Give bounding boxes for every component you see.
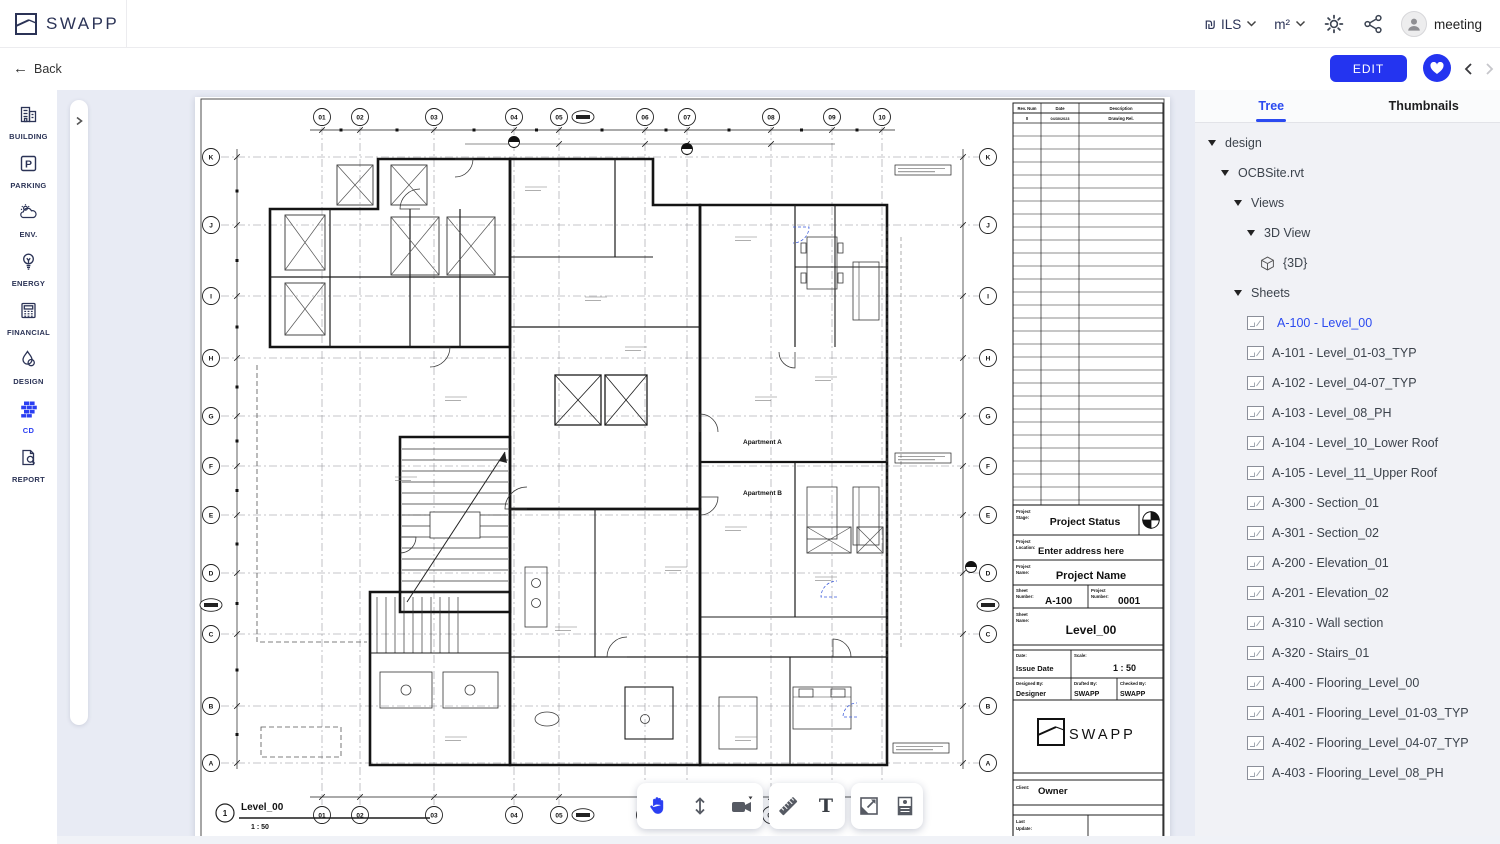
environment-icon	[18, 202, 40, 228]
sheet-icon	[1247, 646, 1264, 660]
svg-text:B: B	[986, 704, 991, 711]
tree-item-sheet[interactable]: A-104 - Level_10_Lower Roof	[1195, 428, 1500, 458]
tree-item-sheet[interactable]: A-401 - Flooring_Level_01-03_TYP	[1195, 698, 1500, 728]
swapp-logo-icon	[14, 12, 38, 36]
user-menu[interactable]: meeting	[1401, 11, 1482, 37]
sheet-info-tool[interactable]	[888, 789, 922, 823]
svg-text:SWAPP: SWAPP	[1120, 691, 1146, 698]
sheet-icon	[1247, 556, 1264, 570]
svg-text:05: 05	[555, 115, 563, 122]
svg-text:E: E	[986, 513, 991, 520]
back-button[interactable]: ← Back	[13, 60, 62, 77]
edit-button[interactable]: EDIT	[1330, 55, 1407, 82]
share-button[interactable]	[1362, 13, 1384, 35]
tree-item-label: A-102 - Level_04-07_TYP	[1272, 376, 1417, 390]
sheet-icon	[1247, 496, 1264, 510]
tree-item-label: A-201 - Elevation_02	[1272, 586, 1389, 600]
svg-text:Last: Last	[1016, 819, 1025, 824]
text-icon: T	[814, 794, 838, 818]
svg-text:G: G	[985, 414, 990, 421]
svg-text:10: 10	[878, 115, 886, 122]
svg-text:0001: 0001	[1118, 596, 1141, 607]
tree-item-label: A-310 - Wall section	[1272, 616, 1383, 630]
svg-text:Drawing Rel.: Drawing Rel.	[1108, 116, 1133, 121]
svg-text:G: G	[208, 414, 213, 421]
tree-item-sheet[interactable]: A-403 - Flooring_Level_08_PH	[1195, 758, 1500, 788]
panel-tabs: Tree Thumbnails	[1195, 90, 1500, 123]
share-icon	[1363, 14, 1383, 34]
svg-text:Sheet: Sheet	[1016, 588, 1028, 593]
svg-text:09: 09	[828, 115, 836, 122]
sheet-icon	[1247, 736, 1264, 750]
drawing-sheet[interactable]: Rev. NumDateDescription004/30/2023Drawin…	[195, 97, 1170, 840]
svg-text:C: C	[986, 632, 991, 639]
svg-text:A: A	[209, 761, 214, 768]
svg-text:T: T	[819, 795, 833, 817]
back-arrow-icon: ←	[13, 60, 28, 77]
height-measure-tool[interactable]	[683, 789, 717, 823]
svg-text:Update:: Update:	[1016, 826, 1033, 831]
rail-item-label: DESIGN	[13, 377, 44, 386]
svg-text:F: F	[209, 464, 213, 471]
currency-select[interactable]: ₪ ILS	[1204, 17, 1257, 32]
svg-text:Name:: Name:	[1016, 618, 1030, 623]
tree-item-sheet[interactable]: A-102 - Level_04-07_TYP	[1195, 368, 1500, 398]
rail-item-label: PARKING	[10, 181, 46, 190]
avatar	[1401, 11, 1427, 37]
tree-item-label: A-101 - Level_01-03_TYP	[1272, 346, 1417, 360]
currency-label: ILS	[1221, 17, 1241, 32]
sheet-icon	[1247, 526, 1264, 540]
floor-plan-svg: Rev. NumDateDescription004/30/2023Drawin…	[195, 97, 1170, 840]
prev-sheet-button[interactable]	[1460, 60, 1478, 78]
svg-text:D: D	[986, 571, 991, 578]
tree-item-label: Sheets	[1251, 286, 1290, 300]
arrows-up-down-icon	[688, 794, 712, 818]
svg-text:Project: Project	[1016, 509, 1031, 514]
svg-text:1: 1	[223, 809, 228, 818]
svg-text:Owner: Owner	[1038, 786, 1068, 797]
sub-header: ← Back EDIT	[0, 48, 1500, 90]
building-icon	[18, 104, 39, 130]
svg-text:H: H	[986, 356, 991, 363]
svg-text:Scale:: Scale:	[1074, 653, 1087, 658]
svg-text:Designed By:: Designed By:	[1016, 681, 1044, 686]
tree-item-sheet[interactable]: A-201 - Elevation_02	[1195, 578, 1500, 608]
collapsed-side-panel[interactable]	[70, 100, 88, 725]
tree-item[interactable]: Views	[1195, 188, 1500, 218]
rail-item-label: FINANCIAL	[7, 328, 50, 337]
svg-text:A-100: A-100	[1045, 596, 1073, 607]
gear-icon	[1324, 14, 1344, 34]
sheet-icon	[1247, 376, 1264, 390]
rail-item-parking[interactable]: P PARKING	[0, 147, 57, 196]
svg-text:J: J	[209, 223, 213, 230]
right-panel: Tree Thumbnails designOCBSite.rvtViews3D…	[1195, 90, 1500, 844]
svg-text:Level_00: Level_00	[1066, 623, 1117, 637]
svg-text:K: K	[209, 155, 214, 162]
tree-collapse-caret[interactable]	[1247, 230, 1255, 236]
next-sheet-button[interactable]	[1480, 60, 1498, 78]
svg-text:08: 08	[767, 115, 775, 122]
svg-text:H: H	[209, 356, 214, 363]
brand-name: SWAPP	[46, 14, 119, 34]
rail-item-label: BUILDING	[9, 132, 48, 141]
sheet-info-icon	[894, 795, 916, 817]
svg-text:Drafted By:: Drafted By:	[1074, 681, 1098, 686]
chevron-right-icon	[73, 115, 85, 127]
tree-collapse-caret[interactable]	[1234, 200, 1242, 206]
tree-item-label: A-300 - Section_01	[1272, 496, 1379, 510]
tree-item-label: A-104 - Level_10_Lower Roof	[1272, 436, 1438, 450]
chevron-down-icon	[1295, 20, 1306, 28]
unit-select[interactable]: m²	[1274, 17, 1306, 32]
chevron-right-icon	[1480, 60, 1498, 78]
svg-text:Rev. Num: Rev. Num	[1017, 106, 1036, 111]
floor-plan-drawing: Rev. NumDateDescription004/30/2023Drawin…	[200, 99, 1164, 838]
rail-item-financial[interactable]: FINANCIAL	[0, 294, 57, 343]
svg-text:04/30/2023: 04/30/2023	[1050, 117, 1069, 121]
tree-item[interactable]: 3D View	[1195, 218, 1500, 248]
svg-text:Number:: Number:	[1016, 594, 1034, 599]
svg-text:Location:: Location:	[1016, 545, 1036, 550]
svg-text:B: B	[209, 704, 214, 711]
svg-text:SWAPP: SWAPP	[1069, 727, 1136, 743]
tree-item-sheet[interactable]: A-320 - Stairs_01	[1195, 638, 1500, 668]
sheet-icon	[1247, 316, 1264, 330]
tree-item-sheet[interactable]: A-101 - Level_01-03_TYP	[1195, 338, 1500, 368]
tree-item-label: A-401 - Flooring_Level_01-03_TYP	[1272, 706, 1469, 720]
tree-item-label: 3D View	[1264, 226, 1310, 240]
svg-text:D: D	[209, 571, 214, 578]
tree-item-sheet[interactable]: A-310 - Wall section	[1195, 608, 1500, 638]
svg-text:Apartment B: Apartment B	[743, 490, 782, 497]
cube-3d-icon	[1260, 256, 1275, 271]
ruler-icon	[775, 793, 801, 819]
sheet-icon	[1247, 346, 1264, 360]
svg-text:I: I	[987, 294, 989, 301]
tree-item-label: design	[1225, 136, 1262, 150]
rail-item-label: ENV.	[19, 230, 37, 239]
tree-item-sheet[interactable]: A-300 - Section_01	[1195, 488, 1500, 518]
person-icon	[1406, 16, 1422, 32]
tree-collapse-caret[interactable]	[1221, 170, 1229, 176]
hand-icon	[646, 794, 670, 818]
svg-text:06: 06	[641, 115, 649, 122]
tree-item-label: A-400 - Flooring_Level_00	[1272, 676, 1419, 690]
chevron-left-icon	[1460, 60, 1478, 78]
toolbar-group-navigation	[637, 783, 763, 829]
tree-item-label: A-103 - Level_08_PH	[1272, 406, 1392, 420]
sheet-icon	[1247, 616, 1264, 630]
tree-item[interactable]: {3D}	[1195, 248, 1500, 278]
tree-collapse-caret[interactable]	[1234, 290, 1242, 296]
user-name: meeting	[1434, 17, 1482, 32]
back-label: Back	[34, 62, 62, 76]
svg-text:Apartment A: Apartment A	[743, 439, 782, 446]
tree-item[interactable]: design	[1195, 128, 1500, 158]
tree-item-sheet[interactable]: A-301 - Section_02	[1195, 518, 1500, 548]
svg-text:04: 04	[510, 813, 518, 820]
design-icon	[18, 349, 39, 375]
svg-text:Project: Project	[1016, 539, 1031, 544]
tree-item-sheet[interactable]: A-400 - Flooring_Level_00	[1195, 668, 1500, 698]
horizontal-scrollbar[interactable]	[57, 836, 1500, 844]
svg-text:05: 05	[555, 813, 563, 820]
sheet-icon	[1247, 706, 1264, 720]
image-export-tool[interactable]	[852, 789, 886, 823]
tree-item-label: OCBSite.rvt	[1238, 166, 1304, 180]
tree-item-label: {3D}	[1283, 256, 1307, 270]
svg-text:1 : 50: 1 : 50	[251, 824, 269, 831]
rail-item-cd[interactable]: CD	[0, 392, 57, 441]
report-icon	[18, 447, 39, 473]
tree-item-sheet[interactable]: A-103 - Level_08_PH	[1195, 398, 1500, 428]
tree-item-sheet[interactable]: A-100 - Level_00	[1195, 308, 1500, 338]
sheet-icon	[1247, 466, 1264, 480]
svg-text:Number:: Number:	[1091, 594, 1109, 599]
currency-symbol: ₪	[1204, 17, 1215, 32]
rail-item-energy[interactable]: ENERGY	[0, 245, 57, 294]
sheet-icon	[1247, 586, 1264, 600]
cd-bricks-icon	[18, 399, 40, 424]
svg-text:Project: Project	[1091, 588, 1106, 593]
rail-item-label: ENERGY	[12, 279, 45, 288]
svg-text:01: 01	[318, 115, 326, 122]
text-tool[interactable]: T	[809, 789, 843, 823]
rail-item-label: CD	[23, 426, 34, 435]
svg-text:A: A	[986, 761, 991, 768]
camera-tool[interactable]	[725, 789, 759, 823]
tree-collapse-caret[interactable]	[1208, 140, 1216, 146]
tree-item-label: A-105 - Level_11_Upper Roof	[1272, 466, 1437, 480]
svg-text:Description: Description	[1109, 106, 1132, 111]
unit-label: m²	[1274, 17, 1290, 32]
chevron-down-icon	[1246, 20, 1257, 28]
video-camera-icon	[729, 793, 755, 819]
svg-text:Designer: Designer	[1016, 691, 1046, 698]
svg-text:SWAPP: SWAPP	[1074, 691, 1100, 698]
image-export-icon	[858, 795, 880, 817]
svg-text:Stage:: Stage:	[1016, 515, 1030, 520]
tree-item-label: A-200 - Elevation_01	[1272, 556, 1389, 570]
svg-text:Project: Project	[1016, 564, 1031, 569]
brand-logo[interactable]: SWAPP	[0, 0, 127, 48]
heart-icon	[1430, 62, 1444, 75]
sheet-icon	[1247, 676, 1264, 690]
svg-text:F: F	[986, 464, 990, 471]
svg-text:1 : 50: 1 : 50	[1113, 663, 1136, 673]
svg-text:Checked By:: Checked By:	[1120, 681, 1147, 686]
svg-text:Date: Date	[1055, 106, 1065, 111]
financial-icon	[18, 300, 39, 326]
svg-text:0: 0	[1026, 116, 1029, 121]
top-header: SWAPP ₪ ILS m²	[0, 0, 1500, 48]
tree-item-sheet[interactable]: A-105 - Level_11_Upper Roof	[1195, 458, 1500, 488]
tab-thumbnails[interactable]: Thumbnails	[1348, 90, 1500, 122]
svg-text:Sheet: Sheet	[1016, 612, 1028, 617]
svg-text:Level_00: Level_00	[241, 802, 284, 813]
rail-item-design[interactable]: DESIGN	[0, 343, 57, 392]
svg-text:02: 02	[356, 115, 364, 122]
sheet-icon	[1247, 406, 1264, 420]
svg-text:03: 03	[430, 115, 438, 122]
svg-text:Client:: Client:	[1016, 785, 1030, 790]
toolbar-group-output	[851, 783, 923, 829]
svg-text:E: E	[209, 513, 214, 520]
app-root: SWAPP ₪ ILS m²	[0, 0, 1500, 844]
expand-panel-button[interactable]	[73, 114, 85, 132]
svg-text:07: 07	[683, 115, 691, 122]
left-module-rail: BUILDING P PARKING ENV. ENERGY FINANCIAL…	[0, 90, 57, 844]
tree-item[interactable]: Sheets	[1195, 278, 1500, 308]
toolbar-group-annotation: T	[769, 783, 845, 829]
favorite-button[interactable]	[1423, 54, 1451, 82]
tree-item-sheet[interactable]: A-402 - Flooring_Level_04-07_TYP	[1195, 728, 1500, 758]
svg-text:I: I	[210, 294, 212, 301]
sheet-icon	[1247, 766, 1264, 780]
svg-text:04: 04	[510, 115, 518, 122]
tree-item-label: A-402 - Flooring_Level_04-07_TYP	[1272, 736, 1469, 750]
tree-item-label: Views	[1251, 196, 1284, 210]
drawing-canvas[interactable]: Rev. NumDateDescription004/30/2023Drawin…	[57, 90, 1195, 844]
pan-tool[interactable]	[641, 789, 675, 823]
rail-item-label: REPORT	[12, 475, 45, 484]
tree-item-label: A-403 - Flooring_Level_08_PH	[1272, 766, 1444, 780]
settings-button[interactable]	[1323, 13, 1345, 35]
tree-item[interactable]: OCBSite.rvt	[1195, 158, 1500, 188]
sheet-icon	[1247, 436, 1264, 450]
svg-text:C: C	[209, 632, 214, 639]
sheet-tree: designOCBSite.rvtViews3D View {3D}Sheets…	[1195, 123, 1500, 839]
svg-text:Name:: Name:	[1016, 570, 1030, 575]
rail-item-building[interactable]: BUILDING	[0, 98, 57, 147]
svg-text:P: P	[25, 158, 32, 170]
rail-item-env[interactable]: ENV.	[0, 196, 57, 245]
svg-text:Project Status: Project Status	[1050, 516, 1121, 528]
tab-tree[interactable]: Tree	[1195, 90, 1348, 122]
energy-icon	[18, 251, 39, 277]
tree-item-sheet[interactable]: A-200 - Elevation_01	[1195, 548, 1500, 578]
tree-item-label: A-100 - Level_00	[1277, 316, 1372, 330]
rail-item-report[interactable]: REPORT	[0, 441, 57, 490]
svg-text:Enter address here: Enter address here	[1038, 546, 1124, 557]
svg-text:Issue Date: Issue Date	[1016, 664, 1054, 673]
tree-item-label: A-320 - Stairs_01	[1272, 646, 1369, 660]
svg-text:K: K	[986, 155, 991, 162]
parking-icon: P	[18, 153, 39, 179]
svg-text:J: J	[986, 223, 990, 230]
measure-tool[interactable]	[771, 789, 805, 823]
svg-text:03: 03	[430, 813, 438, 820]
svg-text:Date:: Date:	[1016, 653, 1027, 658]
svg-text:Project Name: Project Name	[1056, 570, 1126, 582]
tree-item-label: A-301 - Section_02	[1272, 526, 1379, 540]
